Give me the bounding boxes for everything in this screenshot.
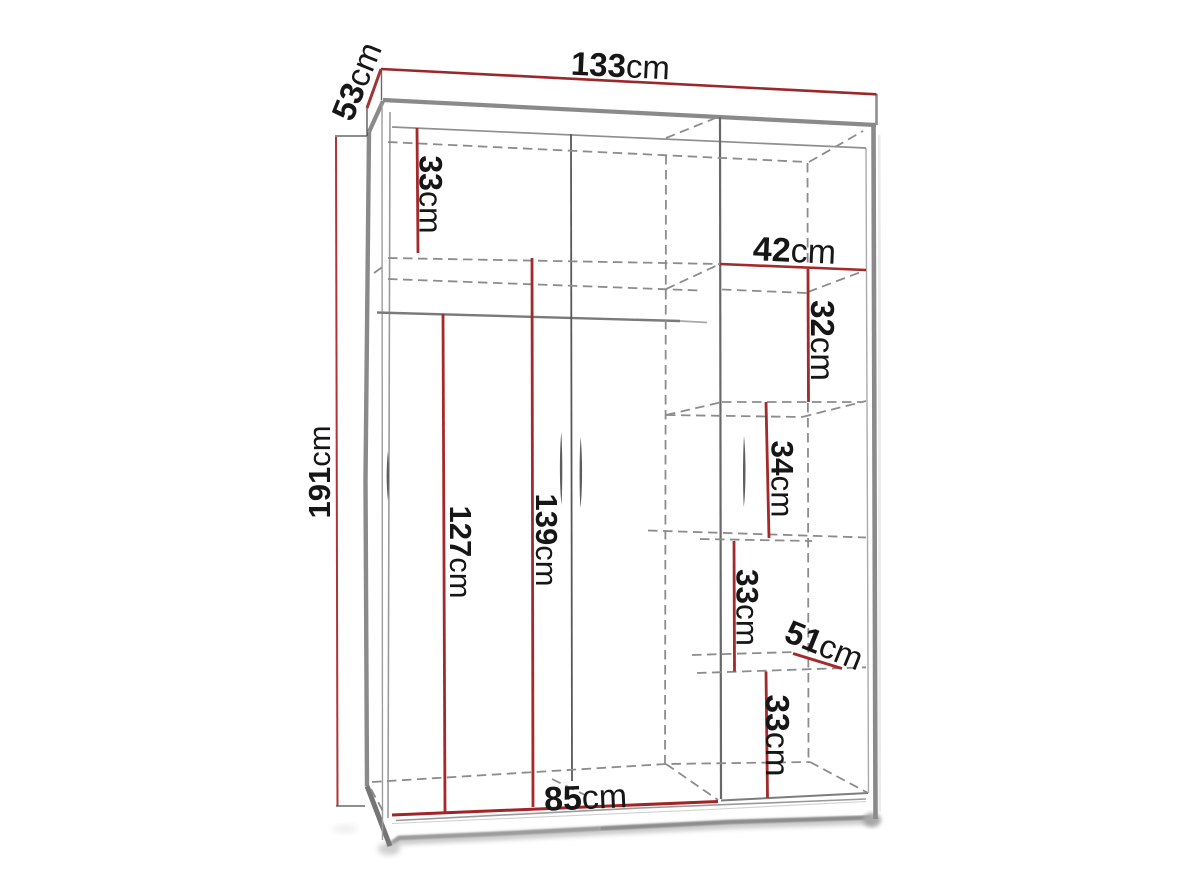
svg-text:127cm: 127cm [444,505,479,598]
svg-text:139cm: 139cm [530,493,565,586]
svg-text:85cm: 85cm [543,777,628,819]
svg-text:34cm: 34cm [765,440,801,517]
svg-text:33cm: 33cm [759,695,796,777]
svg-text:51cm: 51cm [780,612,869,677]
svg-text:191cm: 191cm [302,425,337,518]
svg-text:133cm: 133cm [570,44,671,86]
svg-text:42cm: 42cm [752,230,837,272]
svg-text:33cm: 33cm [413,155,449,233]
svg-text:33cm: 33cm [730,569,766,646]
svg-text:32cm: 32cm [805,300,842,381]
